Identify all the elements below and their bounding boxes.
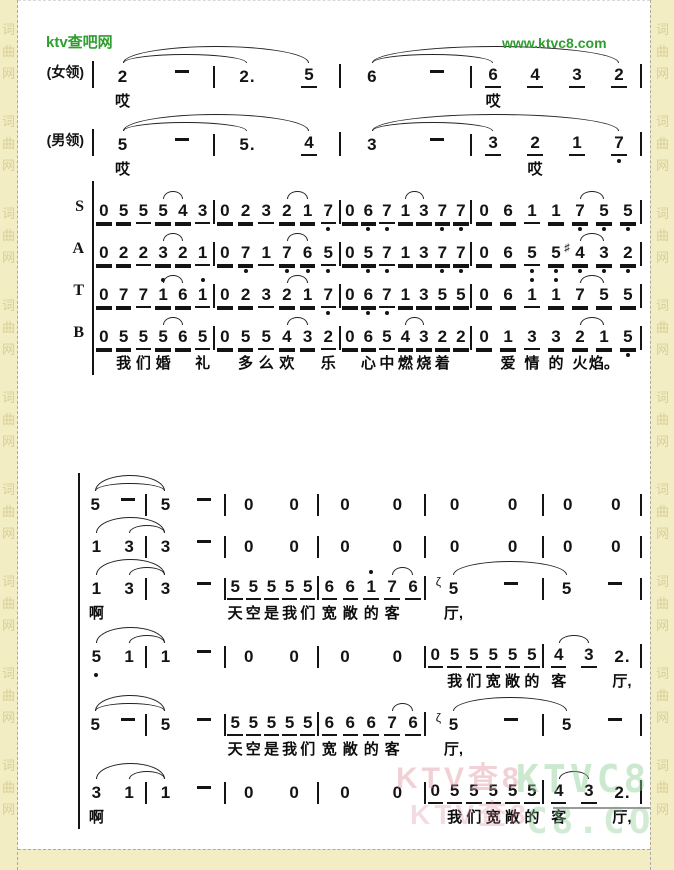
lyric: 的 (364, 602, 379, 623)
system-barline (78, 515, 80, 557)
note: 7 (453, 200, 468, 224)
note: 1 (524, 200, 539, 224)
measure: 055565 (94, 326, 215, 350)
site-url-link[interactable]: www.ktvc8.com (502, 35, 607, 51)
slur-arc (559, 635, 589, 643)
side-watermark-text: 词曲网 (656, 19, 669, 85)
lyric: 么 (259, 352, 274, 373)
note: 6 (361, 200, 376, 224)
slur-arc (580, 317, 604, 325)
measure: 023217 (215, 284, 341, 308)
system-barline (78, 557, 80, 625)
note: 5 (300, 576, 315, 600)
dash-note (430, 138, 444, 141)
note: 5 (379, 326, 394, 350)
measure: 5 (80, 714, 147, 736)
stave-body: 1335555566176ζ55啊天空是我们宽敞的客厅, (78, 557, 642, 625)
note: 0 (286, 646, 301, 668)
dash-note (121, 498, 135, 501)
note: 1 (524, 284, 539, 308)
stave-label: (女领) (30, 45, 92, 113)
measure: 3 (147, 536, 226, 558)
lyric: 宽 (486, 670, 501, 691)
lyric: 欢 (279, 352, 294, 373)
note: 0 (505, 494, 520, 516)
note: 6 (343, 712, 358, 736)
side-watermark-text: 词曲网 (656, 571, 669, 637)
stave-row: 5500000000 (30, 473, 642, 515)
note: 7 (116, 284, 131, 308)
lyric: 厅, (612, 670, 631, 691)
measure: 055543 (94, 200, 215, 224)
lyric: 空 (246, 738, 261, 759)
note: 5 (321, 242, 336, 266)
measure: 5 (147, 714, 226, 736)
note: 0 (390, 646, 405, 668)
measure: 0611755 (472, 200, 642, 224)
lyric: 礼 (195, 352, 210, 373)
note: 0 (390, 782, 405, 804)
stave-body: 3110000055555432.啊我们宽敞的客厅, (78, 761, 642, 829)
notes-line: 07716102321706713550611755 (94, 281, 642, 308)
side-watermark-text: 词曲网 (2, 387, 15, 453)
note (194, 646, 214, 668)
dash-note (197, 650, 211, 653)
measure: 0655♯432 (472, 242, 642, 266)
dash-note (504, 582, 518, 585)
system-barline (78, 693, 80, 761)
system-barline (78, 761, 80, 829)
note: 2 (238, 200, 253, 224)
note: 3 (524, 326, 539, 350)
stave-body: 55.433217哎哎 (92, 113, 642, 181)
note: 3 (89, 782, 104, 804)
note: 7 (435, 200, 450, 224)
note: 5 (301, 64, 316, 88)
measure: 55555 (226, 712, 319, 736)
note: 0 (447, 494, 462, 516)
lyric: 们 (300, 602, 315, 623)
lyric: 的 (548, 352, 563, 373)
octave-dot-high (369, 570, 373, 574)
note: 7 (136, 284, 151, 308)
note: 0 (428, 780, 443, 804)
note: 0 (342, 200, 357, 224)
note: 4 (279, 326, 294, 350)
lyric: 哎 (528, 158, 543, 179)
note: 3 (364, 134, 379, 156)
measure: 055432 (215, 326, 341, 350)
note (605, 714, 625, 736)
note: 5 (264, 712, 279, 736)
lyric: 天 (228, 738, 243, 759)
stave-body: 05554302321706713770611755 (92, 181, 642, 223)
note: 7 (279, 242, 294, 266)
note: 6 (364, 66, 379, 88)
slur-arc (580, 191, 604, 199)
measure: 055555 (426, 644, 544, 668)
note: 3 (155, 242, 170, 266)
note: 3 (485, 132, 500, 156)
note: 7 (572, 200, 587, 224)
site-logo-link[interactable]: ktv查吧网 (46, 31, 113, 52)
note: 2 (279, 284, 294, 308)
note: 5 (505, 780, 520, 804)
stave-row: 3110000055555432.啊我们宽敞的客厅, (30, 761, 642, 829)
measure: 3217 (472, 132, 642, 156)
note: 3 (416, 200, 431, 224)
measure: 6432 (472, 64, 642, 88)
note: 0 (337, 646, 352, 668)
side-watermark-text: 词曲网 (656, 755, 669, 821)
system-barline (92, 129, 94, 156)
note: 1 (195, 242, 210, 266)
dash-note (608, 718, 622, 721)
measure: 0133215 (472, 326, 642, 350)
measure: 3 (147, 578, 226, 600)
note: 6 (405, 712, 420, 736)
stave-label: T (30, 265, 92, 307)
note: 6 (322, 576, 337, 600)
system-barline (78, 625, 80, 693)
note: ζ5 (446, 578, 461, 600)
note: 2 (527, 132, 542, 156)
note (194, 578, 214, 600)
measure: 00 (544, 494, 642, 516)
stave-body: 05556505543206543220133215我们婚礼多么欢乐心中燃烧着爱… (92, 307, 642, 375)
measure: 1 (147, 782, 226, 804)
lyric: 客 (385, 602, 400, 623)
note: 2. (611, 646, 632, 668)
notes-line: 05556505543206543220133215 (94, 323, 642, 350)
octave-dot-high (530, 278, 534, 282)
note: 5 (246, 712, 261, 736)
slur-arc (580, 233, 604, 241)
note: 1 (300, 200, 315, 224)
notes-line: 02232107176505713770655♯432 (94, 239, 642, 266)
note: 5 (524, 780, 539, 804)
note: 5 (620, 284, 635, 308)
stave-label (30, 625, 78, 693)
note: 7 (572, 284, 587, 308)
note: 1 (363, 576, 378, 600)
slur-arc (392, 567, 413, 575)
note: 3 (158, 536, 173, 558)
slur-arc (287, 317, 308, 325)
system-barline (92, 181, 94, 223)
note: 5 (466, 644, 481, 668)
note: 0 (337, 536, 352, 558)
side-watermark-text: 词曲网 (2, 755, 15, 821)
note: 6 (343, 576, 358, 600)
note: 5 (264, 576, 279, 600)
note: 2 (136, 242, 151, 266)
note (172, 66, 192, 88)
note: 5 (435, 284, 450, 308)
note: 0 (217, 242, 232, 266)
measure: 66676 (319, 712, 426, 736)
lyric: 我 (447, 670, 462, 691)
dash-note (175, 138, 189, 141)
note: 0 (286, 782, 301, 804)
octave-dot-low (94, 673, 98, 677)
stave-label (30, 693, 78, 761)
note (118, 714, 138, 736)
stave-body: 555555566676ζ55天空是我们宽敞的客厅, (78, 693, 642, 761)
stave-row: 1335555566176ζ55啊天空是我们宽敞的客厅, (30, 557, 642, 625)
dash-note (504, 718, 518, 721)
note: 1 (398, 284, 413, 308)
dash-note (430, 70, 444, 73)
lyric: 宽 (322, 602, 337, 623)
note: 7 (379, 284, 394, 308)
note: 3 (416, 326, 431, 350)
ornament-icon: ζ (436, 571, 441, 593)
note: 2 (321, 326, 336, 350)
stave-body: 02232107176505713770655♯432 (92, 223, 642, 265)
dash-note (197, 786, 211, 789)
note: 5. (236, 134, 257, 156)
side-watermark-text: 词曲网 (2, 111, 15, 177)
score-system-2: 5500000000133000000001335555566176ζ55啊天空… (30, 473, 642, 829)
measure: 5 (80, 494, 147, 516)
note: 0 (241, 494, 256, 516)
note: 3 (416, 242, 431, 266)
side-watermark-text: 词曲网 (656, 295, 669, 361)
note: 1 (398, 242, 413, 266)
note (427, 66, 447, 88)
slur-arc (580, 275, 604, 283)
note: 1 (195, 284, 210, 308)
note: 2 (620, 242, 635, 266)
note: 1 (158, 782, 173, 804)
measure: 00 (226, 646, 319, 668)
note: 1 (121, 646, 136, 668)
lyric: 婚 (156, 352, 171, 373)
note: 0 (476, 200, 491, 224)
note: 5 (300, 712, 315, 736)
note: 6 (361, 284, 376, 308)
lyric: 厅, (444, 602, 463, 623)
lyric: 我 (116, 352, 131, 373)
stave-body: 13300000000 (78, 515, 642, 557)
slur-arc (163, 233, 183, 241)
side-watermark-text: 词曲网 (2, 203, 15, 269)
note: 0 (447, 536, 462, 558)
stave-row: 5110000055555432.我们宽敞的客厅, (30, 625, 642, 693)
note: 3 (581, 780, 596, 804)
notes-line: 3110000055555432. (80, 777, 642, 804)
measure: 0571377 (341, 242, 473, 266)
note: 5 (282, 712, 297, 736)
measure: 00 (319, 646, 426, 668)
measure: 55555 (226, 576, 319, 600)
note (427, 134, 447, 156)
measure: 023217 (215, 200, 341, 224)
stave-row: S05554302321706713770611755 (30, 181, 642, 223)
side-watermark-text: 词曲网 (2, 295, 15, 361)
side-watermark-text: 词曲网 (2, 479, 15, 545)
note: 6 (405, 576, 420, 600)
note: 0 (428, 644, 443, 668)
lyric: 厅, (444, 738, 463, 759)
note: 7 (321, 284, 336, 308)
lyric: 敞 (343, 602, 358, 623)
note: 5 (486, 644, 501, 668)
note (118, 494, 138, 516)
measure: 0611755 (472, 284, 642, 308)
note: 2 (238, 284, 253, 308)
stave-label (30, 515, 78, 557)
measure: 077161 (94, 284, 215, 308)
note: 1 (258, 242, 273, 266)
lyric: 燃 (398, 352, 413, 373)
note: 0 (337, 494, 352, 516)
note: 3 (300, 326, 315, 350)
note (501, 714, 521, 736)
note: 0 (217, 284, 232, 308)
slur-arc (163, 275, 183, 283)
note: 2 (572, 326, 587, 350)
stave-row: A02232107176505713770655♯432 (30, 223, 642, 265)
lyric: 客 (551, 670, 566, 691)
note: 6 (175, 326, 190, 350)
dash-note (121, 718, 135, 721)
dash-note (608, 582, 622, 585)
slur-arc (453, 561, 566, 575)
dash-note (197, 718, 211, 721)
note: ζ5 (446, 714, 461, 736)
lyric: 是 (264, 738, 279, 759)
page: 词曲网词曲网词曲网词曲网词曲网词曲网词曲网词曲网词曲网 词曲网词曲网词曲网词曲网… (0, 0, 674, 870)
notes-line: 555555566676ζ55 (80, 709, 642, 736)
lyric: 宽 (486, 806, 501, 827)
side-watermark-text: 词曲网 (2, 571, 15, 637)
bottom-strip (18, 849, 650, 870)
measure: 31 (80, 782, 147, 804)
side-watermark-text: 词曲网 (656, 663, 669, 729)
lyric: 中 (379, 352, 394, 373)
note: 5 (447, 780, 462, 804)
measure: 5 (94, 134, 215, 156)
note: 7 (453, 242, 468, 266)
lyric: 哎 (486, 90, 501, 111)
note: 0 (96, 242, 111, 266)
note: 3 (195, 200, 210, 224)
note: 0 (342, 242, 357, 266)
note: 2 (175, 242, 190, 266)
note: 7 (435, 242, 450, 266)
note: 6 (322, 712, 337, 736)
measure: 00 (426, 536, 544, 558)
note: 3 (596, 242, 611, 266)
note: 5 (238, 326, 253, 350)
lyric: 空 (246, 602, 261, 623)
note (172, 134, 192, 156)
lyric: 我 (447, 806, 462, 827)
octave-dot-low (626, 353, 630, 357)
stave-body: 07716102321706713550611755 (92, 265, 642, 307)
note: 5 (559, 714, 574, 736)
note: 7 (321, 200, 336, 224)
measure: 0671377 (341, 200, 473, 224)
dash-note (197, 582, 211, 585)
note: 5 (486, 780, 501, 804)
note: 0 (217, 200, 232, 224)
note: 4 (301, 132, 316, 156)
stave-label: (男领) (30, 113, 92, 181)
note: 0 (608, 494, 623, 516)
note: 2 (279, 200, 294, 224)
note: 5 (596, 200, 611, 224)
note: 0 (390, 494, 405, 516)
note: 1 (158, 646, 173, 668)
stave-label: A (30, 223, 92, 265)
stave-label (30, 557, 78, 625)
octave-dot-high (201, 278, 205, 282)
measure: 13 (80, 578, 147, 600)
note: 5 (87, 714, 102, 736)
lyric: 烧 (416, 352, 431, 373)
notes-line: 55.433217 (94, 129, 642, 156)
notes-line: 5500000000 (80, 489, 642, 516)
measure: 0671355 (341, 284, 473, 308)
note: 0 (560, 536, 575, 558)
note: 5 (559, 578, 574, 600)
note: 6 (361, 326, 376, 350)
side-watermark-text: 词曲网 (2, 663, 15, 729)
lyric: 爱 (501, 352, 516, 373)
measure: 00 (226, 536, 319, 558)
score-system-1: (女领)22.566432哎哎(男领)55.433217哎哎S055543023… (30, 45, 642, 375)
lyric: 客 (385, 738, 400, 759)
measure: 432. (544, 644, 642, 668)
note: 0 (286, 494, 301, 516)
note: 5 (89, 646, 104, 668)
note (194, 782, 214, 804)
note: 1 (300, 284, 315, 308)
note: 1 (548, 284, 563, 308)
lyric: 宽 (322, 738, 337, 759)
note (194, 536, 214, 558)
note: 0 (96, 284, 111, 308)
note: 0 (217, 326, 232, 350)
note: 3 (548, 326, 563, 350)
note: 5 (258, 326, 273, 350)
note: 1 (89, 536, 104, 558)
ornament-icon: ζ (436, 707, 441, 729)
lyric: 哎 (115, 158, 130, 179)
note: 2 (116, 242, 131, 266)
note: 0 (476, 326, 491, 350)
note: 5 (453, 284, 468, 308)
stave-row: (男领)55.433217哎哎 (30, 113, 642, 181)
dash-note (197, 540, 211, 543)
note: 7 (238, 242, 253, 266)
measure: 2 (94, 66, 215, 88)
note: 5 (466, 780, 481, 804)
measure: 00 (226, 494, 319, 516)
system-barline (92, 265, 94, 307)
lyric: 天 (228, 602, 243, 623)
note (605, 578, 625, 600)
note: 3 (569, 64, 584, 88)
note: 1 (596, 326, 611, 350)
lyric: 们 (466, 670, 481, 691)
note: 5 (136, 200, 151, 224)
lyric: 啊 (89, 806, 104, 827)
stave-label: S (30, 181, 92, 223)
